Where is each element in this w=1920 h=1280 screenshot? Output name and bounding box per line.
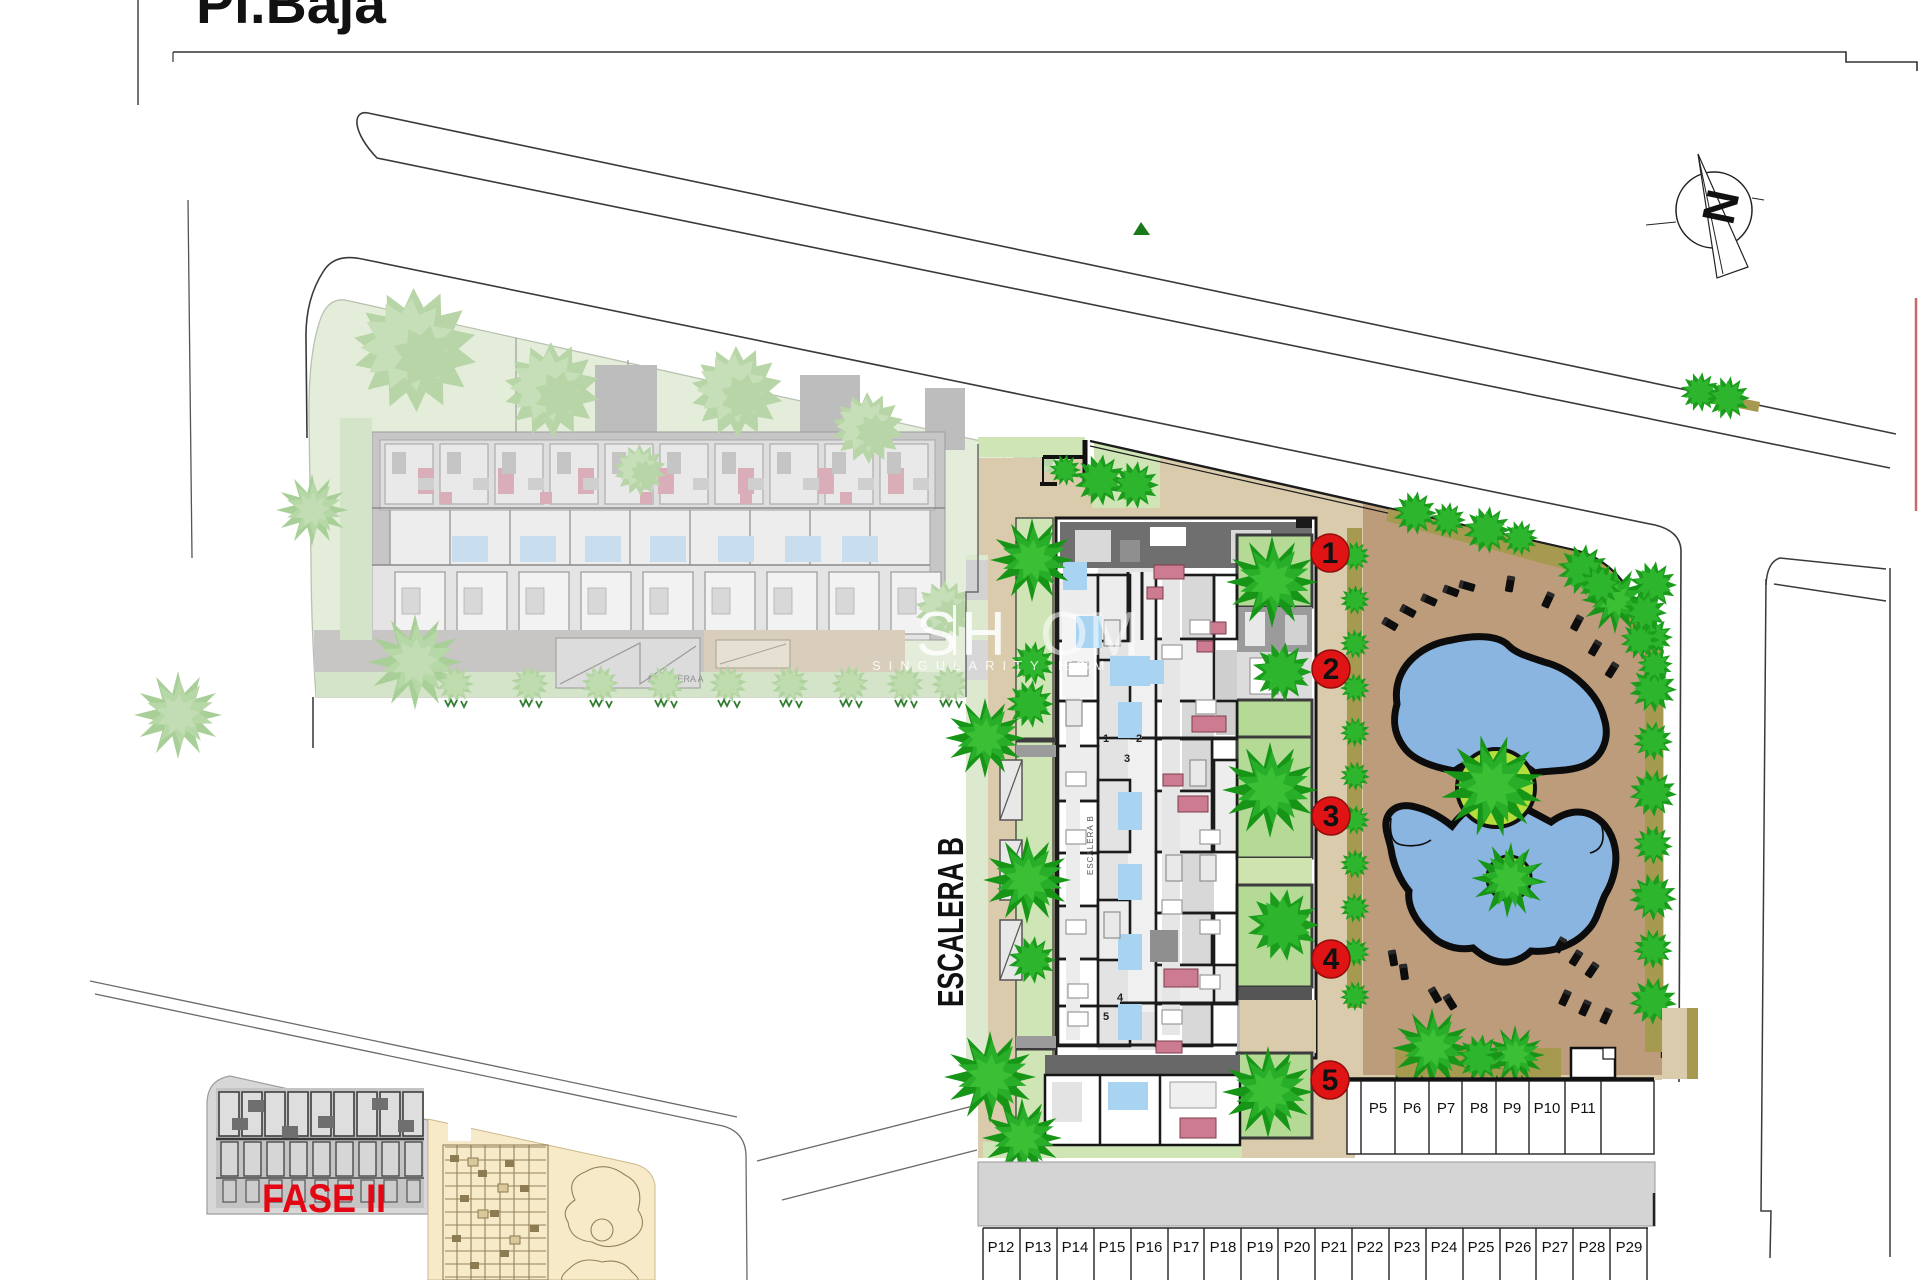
svg-text:P13: P13 <box>1025 1239 1052 1256</box>
svg-text:P14: P14 <box>1062 1239 1089 1256</box>
svg-text:P5: P5 <box>1369 1100 1387 1117</box>
svg-text:4: 4 <box>1117 992 1124 1004</box>
svg-text:P20: P20 <box>1284 1239 1311 1256</box>
svg-text:P8: P8 <box>1470 1100 1488 1117</box>
svg-text:4: 4 <box>1323 943 1340 976</box>
svg-text:ES: ES <box>1064 658 1097 673</box>
svg-text:P25: P25 <box>1468 1239 1495 1256</box>
svg-text:P15: P15 <box>1099 1239 1126 1256</box>
svg-text:2: 2 <box>1323 653 1340 686</box>
svg-text:ESCALERA B: ESCALERA B <box>1086 815 1095 875</box>
svg-text:2: 2 <box>1136 733 1142 745</box>
svg-text:FASE II: FASE II <box>262 1177 386 1221</box>
svg-text:P28: P28 <box>1579 1239 1606 1256</box>
svg-text:1: 1 <box>1103 733 1109 745</box>
svg-text:P21: P21 <box>1321 1239 1348 1256</box>
svg-text:P29: P29 <box>1616 1239 1643 1256</box>
svg-text:P17: P17 <box>1173 1239 1200 1256</box>
svg-text:3: 3 <box>1323 800 1340 833</box>
svg-text:P7: P7 <box>1437 1100 1455 1117</box>
svg-text:P22: P22 <box>1357 1239 1384 1256</box>
svg-text:P9: P9 <box>1503 1100 1521 1117</box>
svg-text:P27: P27 <box>1542 1239 1569 1256</box>
svg-text:P23: P23 <box>1394 1239 1421 1256</box>
svg-text:ESCALERA B: ESCALERA B <box>930 837 971 1007</box>
svg-text:P10: P10 <box>1534 1100 1561 1117</box>
svg-text:3: 3 <box>1124 753 1130 765</box>
svg-text:5: 5 <box>1322 1064 1339 1097</box>
svg-text:P26: P26 <box>1505 1239 1532 1256</box>
svg-text:P6: P6 <box>1403 1100 1421 1117</box>
svg-text:P19: P19 <box>1247 1239 1274 1256</box>
svg-text:P16: P16 <box>1136 1239 1163 1256</box>
svg-text:5: 5 <box>1103 1011 1109 1023</box>
svg-text:P24: P24 <box>1431 1239 1458 1256</box>
svg-text:Pl.Baja: Pl.Baja <box>196 0 387 35</box>
svg-text:1: 1 <box>1322 537 1339 570</box>
svg-text:P11: P11 <box>1570 1100 1596 1117</box>
svg-text:P12: P12 <box>988 1239 1015 1256</box>
svg-text:P18: P18 <box>1210 1239 1237 1256</box>
